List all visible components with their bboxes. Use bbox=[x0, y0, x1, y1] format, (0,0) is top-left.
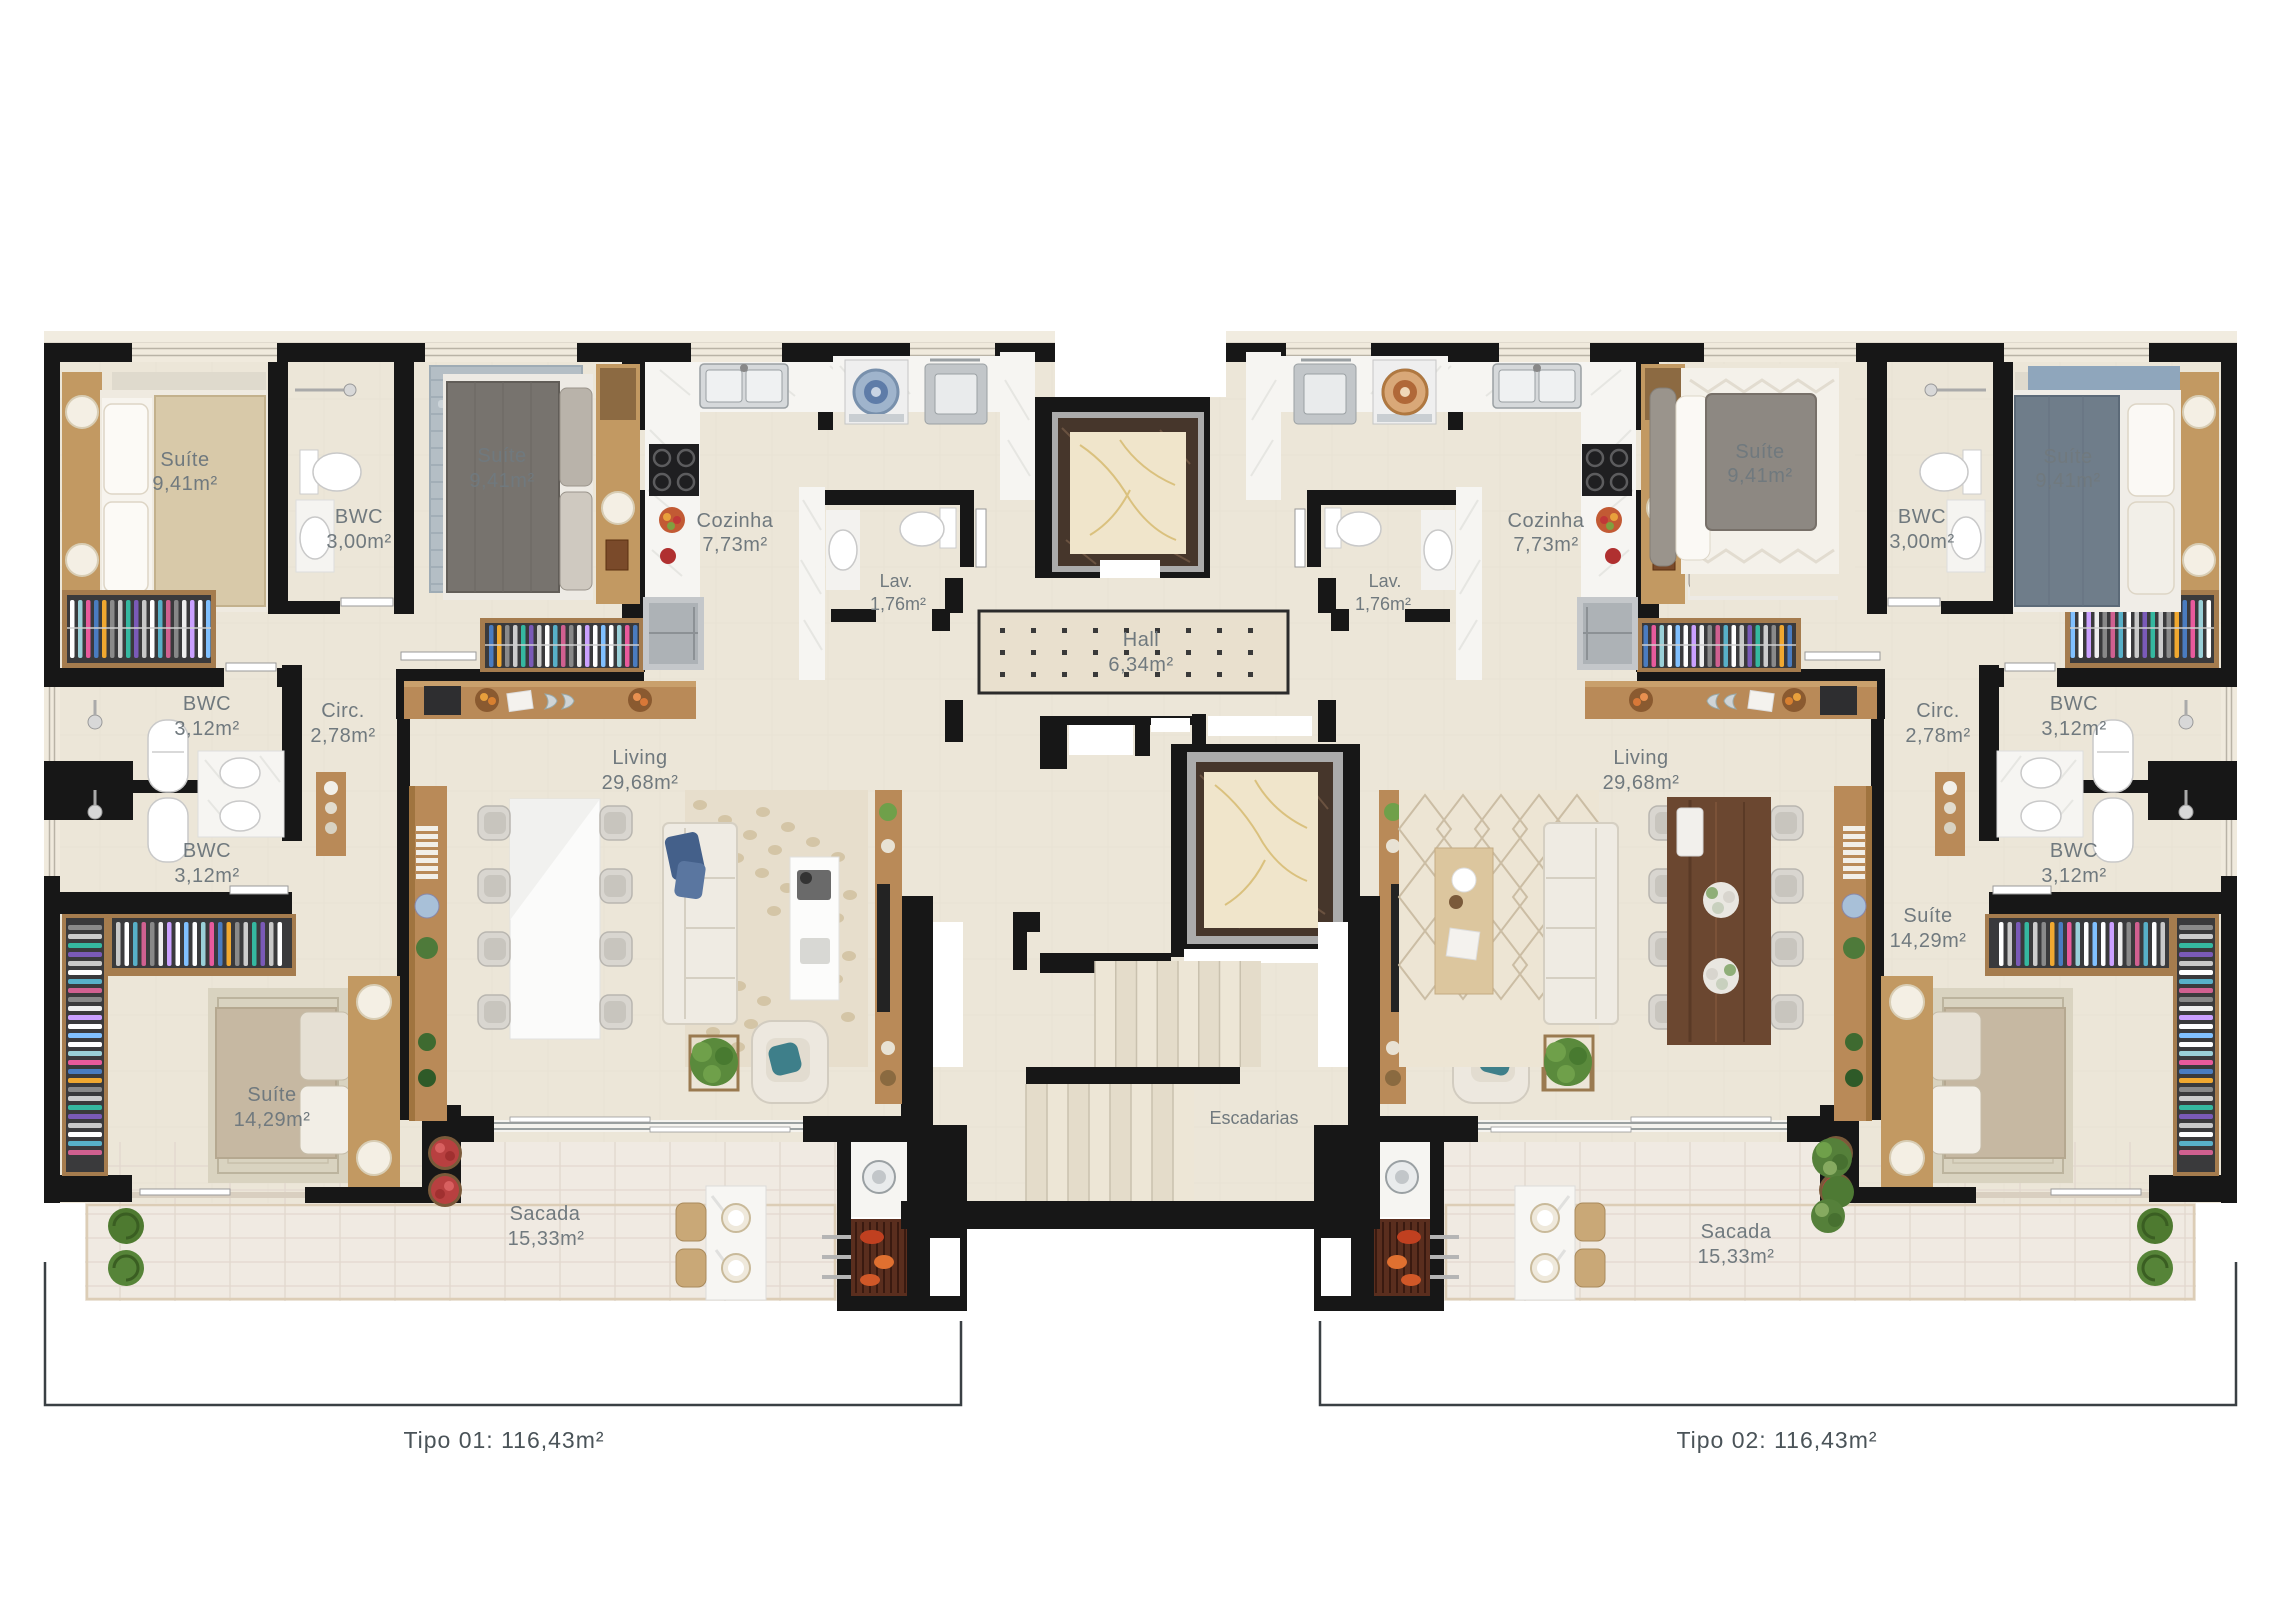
svg-text:3,12m²: 3,12m² bbox=[174, 718, 239, 740]
svg-text:9,41m²: 9,41m² bbox=[469, 470, 534, 492]
svg-text:Cozinha: Cozinha bbox=[1508, 510, 1585, 532]
svg-text:1,76m²: 1,76m² bbox=[870, 594, 926, 614]
svg-text:Sacada: Sacada bbox=[1701, 1221, 1772, 1243]
svg-text:Tipo 01: 116,43m²: Tipo 01: 116,43m² bbox=[403, 1427, 604, 1453]
svg-text:Lav.: Lav. bbox=[1369, 571, 1402, 591]
svg-text:29,68m²: 29,68m² bbox=[602, 772, 679, 794]
svg-text:BWC: BWC bbox=[2050, 693, 2098, 715]
svg-text:3,12m²: 3,12m² bbox=[2041, 718, 2106, 740]
svg-text:15,33m²: 15,33m² bbox=[1698, 1246, 1775, 1268]
svg-text:7,73m²: 7,73m² bbox=[1513, 534, 1578, 556]
svg-text:Circ.: Circ. bbox=[1916, 700, 1960, 722]
svg-text:6,34m²: 6,34m² bbox=[1108, 654, 1173, 676]
svg-text:7,73m²: 7,73m² bbox=[702, 534, 767, 556]
svg-text:Escadarias: Escadarias bbox=[1209, 1108, 1298, 1128]
svg-text:Suíte: Suíte bbox=[1735, 441, 1784, 463]
svg-text:Living: Living bbox=[612, 747, 667, 769]
svg-text:14,29m²: 14,29m² bbox=[234, 1109, 311, 1131]
svg-text:14,29m²: 14,29m² bbox=[1890, 930, 1967, 952]
svg-text:9,41m²: 9,41m² bbox=[2035, 470, 2100, 492]
svg-text:2,78m²: 2,78m² bbox=[310, 725, 375, 747]
svg-text:2,78m²: 2,78m² bbox=[1905, 725, 1970, 747]
svg-text:BWC: BWC bbox=[1898, 506, 1946, 528]
svg-text:3,00m²: 3,00m² bbox=[326, 531, 391, 553]
svg-text:BWC: BWC bbox=[183, 840, 231, 862]
svg-text:15,33m²: 15,33m² bbox=[508, 1228, 585, 1250]
svg-text:BWC: BWC bbox=[183, 693, 231, 715]
svg-text:Suíte: Suíte bbox=[1903, 905, 1952, 927]
svg-text:Hall: Hall bbox=[1123, 629, 1159, 651]
svg-text:Living: Living bbox=[1613, 747, 1668, 769]
svg-text:1,76m²: 1,76m² bbox=[1355, 594, 1411, 614]
svg-text:Circ.: Circ. bbox=[321, 700, 365, 722]
svg-text:29,68m²: 29,68m² bbox=[1603, 772, 1680, 794]
svg-text:Suíte: Suíte bbox=[247, 1084, 296, 1106]
svg-text:Lav.: Lav. bbox=[880, 571, 913, 591]
svg-text:Suíte: Suíte bbox=[477, 445, 526, 467]
svg-text:Cozinha: Cozinha bbox=[697, 510, 774, 532]
svg-text:3,00m²: 3,00m² bbox=[1889, 531, 1954, 553]
svg-text:9,41m²: 9,41m² bbox=[152, 473, 217, 495]
svg-text:9,41m²: 9,41m² bbox=[1727, 465, 1792, 487]
svg-text:Tipo 02: 116,43m²: Tipo 02: 116,43m² bbox=[1676, 1427, 1877, 1453]
svg-text:3,12m²: 3,12m² bbox=[2041, 865, 2106, 887]
svg-text:BWC: BWC bbox=[2050, 840, 2098, 862]
svg-text:Suíte: Suíte bbox=[160, 449, 209, 471]
svg-text:Suíte: Suíte bbox=[2043, 446, 2092, 468]
svg-text:Sacada: Sacada bbox=[510, 1203, 581, 1225]
svg-text:3,12m²: 3,12m² bbox=[174, 865, 239, 887]
svg-text:BWC: BWC bbox=[335, 506, 383, 528]
